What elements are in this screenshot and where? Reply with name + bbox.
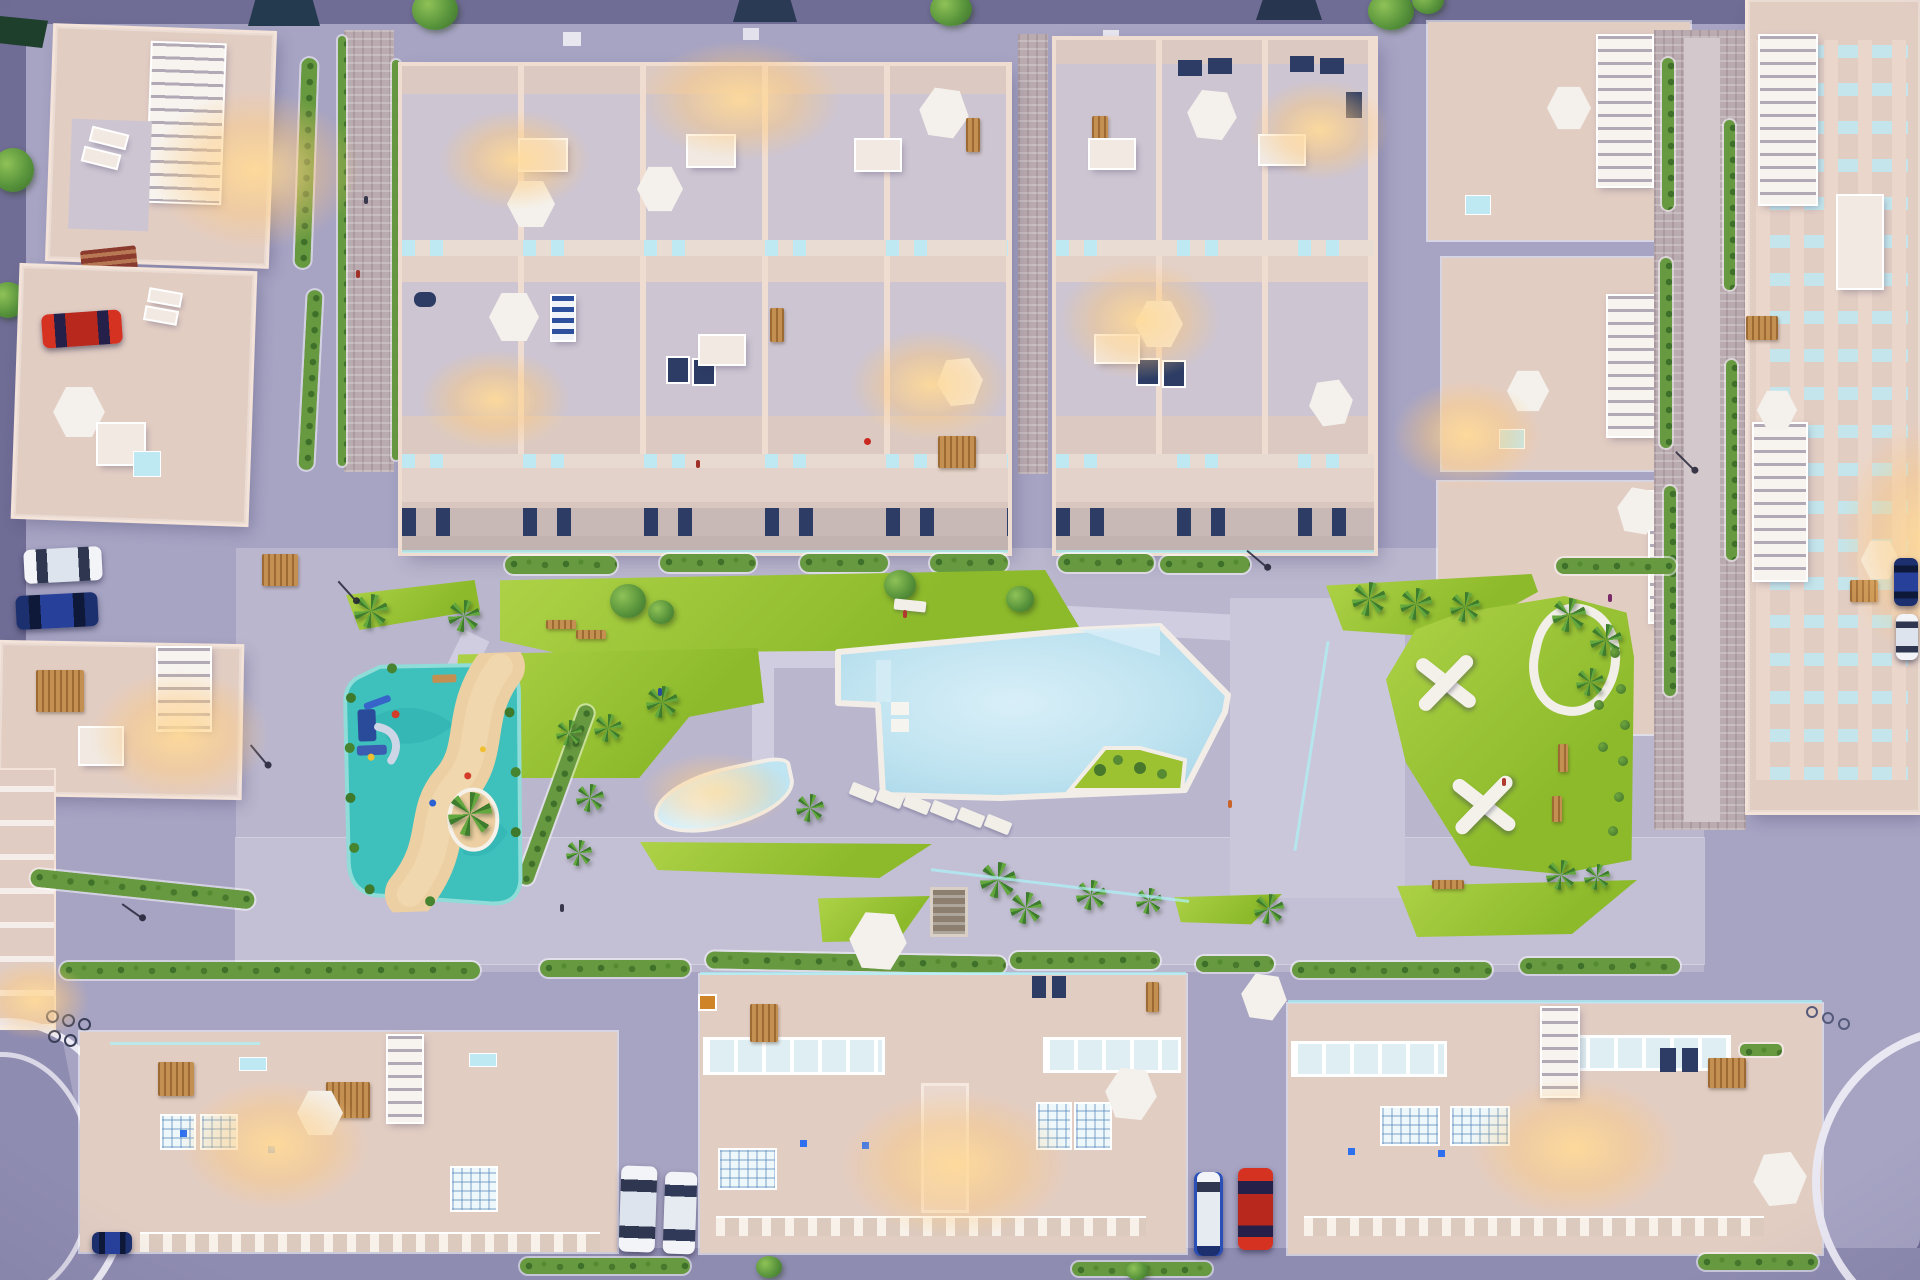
navy-car-left-street <box>15 592 99 630</box>
bicycle <box>78 1018 91 1031</box>
navy-car-bottom-left-corner <box>92 1232 132 1254</box>
skylight-grid <box>1382 1108 1438 1144</box>
balcony-cube <box>700 336 744 364</box>
aerial-render <box>0 0 1920 1280</box>
pool-deck <box>1230 598 1405 898</box>
awning-green <box>0 16 48 48</box>
stair-roof <box>1598 36 1652 186</box>
terrace-frame <box>1558 1038 1728 1068</box>
dining-set <box>36 670 84 712</box>
stair-pit <box>933 890 965 934</box>
palm-tree <box>796 794 824 822</box>
bicycle <box>62 1014 75 1027</box>
solar-panel <box>1178 60 1202 76</box>
hedge-strip <box>540 960 690 977</box>
x-bench <box>1410 644 1482 716</box>
walkway-center <box>1018 34 1048 474</box>
bicycle <box>46 1010 59 1023</box>
palm-tree <box>1076 880 1106 910</box>
storage-doors <box>1032 976 1046 998</box>
street-tree <box>1126 1262 1148 1280</box>
wall-light <box>180 1130 187 1137</box>
skylight-grid <box>162 1116 194 1148</box>
hedge-strip <box>1520 958 1680 974</box>
solar-panel <box>1320 58 1344 74</box>
terrace-frame <box>1046 1040 1178 1070</box>
hedge-strip <box>1160 556 1250 573</box>
palm-tree <box>1450 592 1480 622</box>
person <box>364 196 368 204</box>
balcony-cube <box>1096 336 1138 362</box>
awning <box>733 0 797 22</box>
white-van-bottom-alley <box>1194 1172 1223 1256</box>
wall-light <box>1438 1150 1445 1157</box>
palm-tree <box>448 792 492 836</box>
palm-tree <box>646 686 678 718</box>
stair-roof <box>158 648 210 730</box>
dining-set <box>1746 316 1778 340</box>
solar-panel <box>1290 56 1314 72</box>
red-pot <box>864 438 871 445</box>
x-bench <box>1446 764 1522 840</box>
t2-patio-windows <box>1056 508 1374 536</box>
led-strip <box>110 1042 260 1045</box>
led-strip <box>1056 550 1374 553</box>
white-car-left-street <box>23 546 103 584</box>
person <box>560 904 564 912</box>
arcade-facade <box>716 1218 1146 1236</box>
skylight <box>470 1054 496 1066</box>
arcade-facade <box>140 1234 600 1252</box>
palm-tree <box>1352 582 1386 616</box>
street-tree <box>930 0 972 26</box>
person <box>1502 778 1506 786</box>
arcade-facade <box>1304 1218 1764 1236</box>
dining-set <box>750 1004 778 1042</box>
dining-set <box>262 554 298 586</box>
t1-facade <box>402 468 1008 502</box>
balcony-cube <box>856 140 900 170</box>
roof-window <box>1164 362 1184 386</box>
balcony-white <box>1838 196 1882 288</box>
bicycle <box>48 1030 61 1043</box>
bush <box>1594 700 1604 710</box>
bush <box>1620 720 1630 730</box>
wall-light <box>800 1140 807 1147</box>
skylight-grid <box>1038 1104 1070 1148</box>
skylight-grid <box>1076 1104 1110 1148</box>
boulevard-hedge <box>1660 258 1672 448</box>
main-pool <box>818 612 1238 804</box>
stair-facade <box>1760 36 1816 204</box>
boulevard-hedge <box>1662 58 1674 210</box>
t1-facade-transoms <box>402 454 1008 468</box>
stair-roof <box>147 43 224 203</box>
led-strip <box>700 972 1186 975</box>
white-car-right-street <box>1896 614 1918 660</box>
planter <box>1740 1044 1782 1056</box>
garden-bench <box>1552 796 1562 822</box>
lawn-tree <box>648 600 674 624</box>
palm-tree <box>576 784 604 812</box>
palm-tree <box>566 840 592 866</box>
street-tree <box>756 1256 782 1278</box>
skylight <box>1466 196 1490 214</box>
storage-doors <box>1052 976 1066 998</box>
t1-skylight-band <box>402 240 1008 256</box>
boulevard-hedge <box>1664 486 1676 696</box>
person <box>903 610 907 618</box>
palm-tree <box>1400 588 1432 620</box>
solar-panel <box>1346 92 1362 118</box>
sidewalk-hedge <box>1698 1254 1818 1270</box>
person <box>1228 800 1232 808</box>
water-tank <box>414 292 436 307</box>
palm-tree <box>1010 892 1042 924</box>
stair-roof <box>388 1036 422 1122</box>
lawn-tree <box>1006 586 1034 612</box>
hedge-strip <box>1292 962 1492 978</box>
boulevard-hedge <box>1724 120 1735 290</box>
t2-facade <box>1056 468 1374 502</box>
splash-playground <box>332 652 537 915</box>
stair-roof <box>1542 1008 1578 1096</box>
storage-doors <box>1660 1048 1676 1072</box>
bush <box>1616 684 1626 694</box>
red-car-left-street <box>41 309 123 348</box>
stair-tower <box>924 1086 966 1210</box>
skylight-grid <box>1452 1108 1508 1144</box>
palm-tree <box>594 714 622 742</box>
wall-light <box>268 1146 275 1153</box>
palm-tree <box>1546 860 1576 890</box>
solar-panel <box>1208 58 1232 74</box>
terrace-frame <box>706 1040 882 1072</box>
garden-bench <box>1432 880 1464 889</box>
wall-light <box>1348 1148 1355 1155</box>
palm-tree <box>1576 668 1604 696</box>
hedge-strip <box>1010 952 1160 969</box>
lounge-set <box>158 1062 194 1096</box>
bicycle <box>64 1034 77 1047</box>
person <box>356 270 360 278</box>
person <box>696 460 700 468</box>
sidewalk-hedge <box>520 1258 690 1274</box>
palm-tree <box>1584 864 1610 890</box>
house-mid-left <box>14 266 255 524</box>
garden-bench <box>546 620 576 629</box>
stair-roof <box>1608 296 1656 436</box>
hedge-strip <box>660 554 756 572</box>
t2-wall-band <box>1056 256 1374 282</box>
hedge-strip <box>505 556 617 574</box>
dining-set <box>938 436 976 468</box>
lawn-tree <box>610 584 646 618</box>
balcony-cube <box>688 136 734 166</box>
garden-bench <box>576 630 606 639</box>
person <box>1608 594 1612 602</box>
storage-doors <box>1682 1048 1698 1072</box>
garden-bench <box>1558 744 1568 772</box>
bush <box>1618 756 1628 766</box>
sun-lounger <box>1146 982 1159 1012</box>
dining-set <box>1850 580 1878 602</box>
boulevard-hedge <box>1726 360 1737 560</box>
roof-window <box>1138 360 1158 384</box>
awning <box>1256 0 1322 20</box>
roof-window <box>668 358 688 382</box>
sun-lounger <box>966 118 980 152</box>
palm-tree <box>448 600 480 632</box>
palm-tree <box>556 720 582 746</box>
palm-tree <box>1254 894 1284 924</box>
garage-strip <box>0 770 54 1030</box>
skylight-grid <box>452 1168 496 1210</box>
storefront <box>743 28 759 40</box>
balcony-cube <box>520 140 566 170</box>
led-strip <box>1288 1000 1822 1003</box>
stair-facade <box>1754 424 1806 580</box>
skylight <box>134 452 160 476</box>
red-car-bottom-alley <box>1238 1168 1273 1250</box>
hedge-strip <box>60 962 480 979</box>
walkway-west-hedge <box>338 36 346 466</box>
person <box>658 688 662 696</box>
bush <box>1608 826 1618 836</box>
balcony-cube <box>1260 136 1304 164</box>
boulevard-path <box>1684 38 1720 822</box>
lounge-set <box>1708 1058 1746 1088</box>
roof-cube <box>80 728 122 764</box>
bike-rack-dot <box>1822 1012 1834 1024</box>
balcony-cube <box>1090 140 1134 168</box>
bush <box>1598 742 1608 752</box>
t2-skylight-band <box>1056 240 1374 256</box>
orange-skylight <box>700 996 715 1009</box>
bush <box>1614 792 1624 802</box>
t1-wall-band <box>402 256 1008 282</box>
bike-rack-dot <box>1806 1006 1818 1018</box>
chairs <box>770 308 784 342</box>
awning <box>248 0 320 26</box>
palm-tree <box>1552 598 1586 632</box>
walkway-west <box>344 30 394 472</box>
palm-tree <box>1136 888 1162 914</box>
hedge-strip <box>1556 558 1676 574</box>
t1-patio-windows <box>402 508 1008 536</box>
hedge-strip <box>1058 554 1154 572</box>
walkway-west-hedge <box>392 60 400 460</box>
bush <box>1610 648 1620 658</box>
hedge-strip <box>1196 956 1274 972</box>
street-tree <box>1412 0 1444 14</box>
skylight <box>1500 430 1524 448</box>
white-car-bottom-alley-2 <box>663 1171 698 1254</box>
skylight-grid <box>202 1116 236 1148</box>
navy-car-right-street <box>1894 558 1918 606</box>
terrace-frame <box>1294 1044 1444 1074</box>
t2-row2-terraces <box>1056 282 1374 454</box>
skylight <box>240 1058 266 1070</box>
led-strip <box>402 550 1008 553</box>
t2-facade-transoms <box>1056 454 1374 468</box>
skylight-grid <box>720 1150 775 1188</box>
sunbed-stack <box>552 296 574 340</box>
wall-light <box>862 1142 869 1149</box>
storefront <box>563 32 581 46</box>
hedge-strip <box>930 554 1008 572</box>
hedge-strip <box>800 554 888 572</box>
white-car-bottom-alley-1 <box>619 1165 658 1252</box>
bike-rack-dot <box>1838 1018 1850 1030</box>
lawn-tree <box>884 570 916 600</box>
